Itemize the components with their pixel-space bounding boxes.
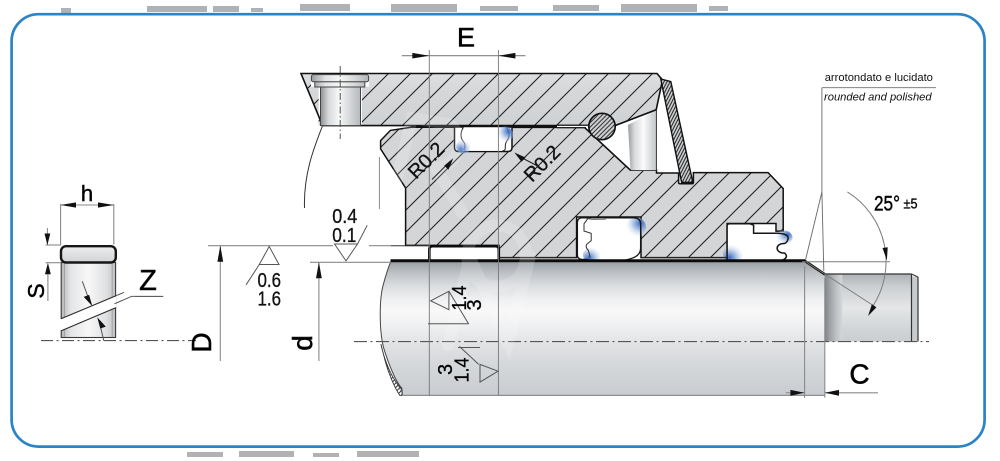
svg-text:arrotondato e lucidato: arrotondato e lucidato (825, 72, 933, 84)
svg-text:25°: 25° (874, 193, 900, 216)
svg-text:0.1: 0.1 (332, 225, 356, 247)
svg-text:h: h (81, 181, 93, 206)
svg-text:±5: ±5 (904, 197, 918, 213)
svg-text:C: C (849, 359, 869, 390)
svg-text:d: d (287, 335, 318, 351)
svg-text:3: 3 (464, 299, 486, 310)
svg-text:1.4: 1.4 (452, 358, 474, 383)
svg-text:E: E (457, 23, 475, 53)
svg-text:S: S (23, 283, 49, 298)
svg-text:D: D (186, 332, 217, 352)
svg-text:1.6: 1.6 (258, 288, 282, 310)
svg-text:rounded and polished: rounded and polished (824, 91, 932, 103)
